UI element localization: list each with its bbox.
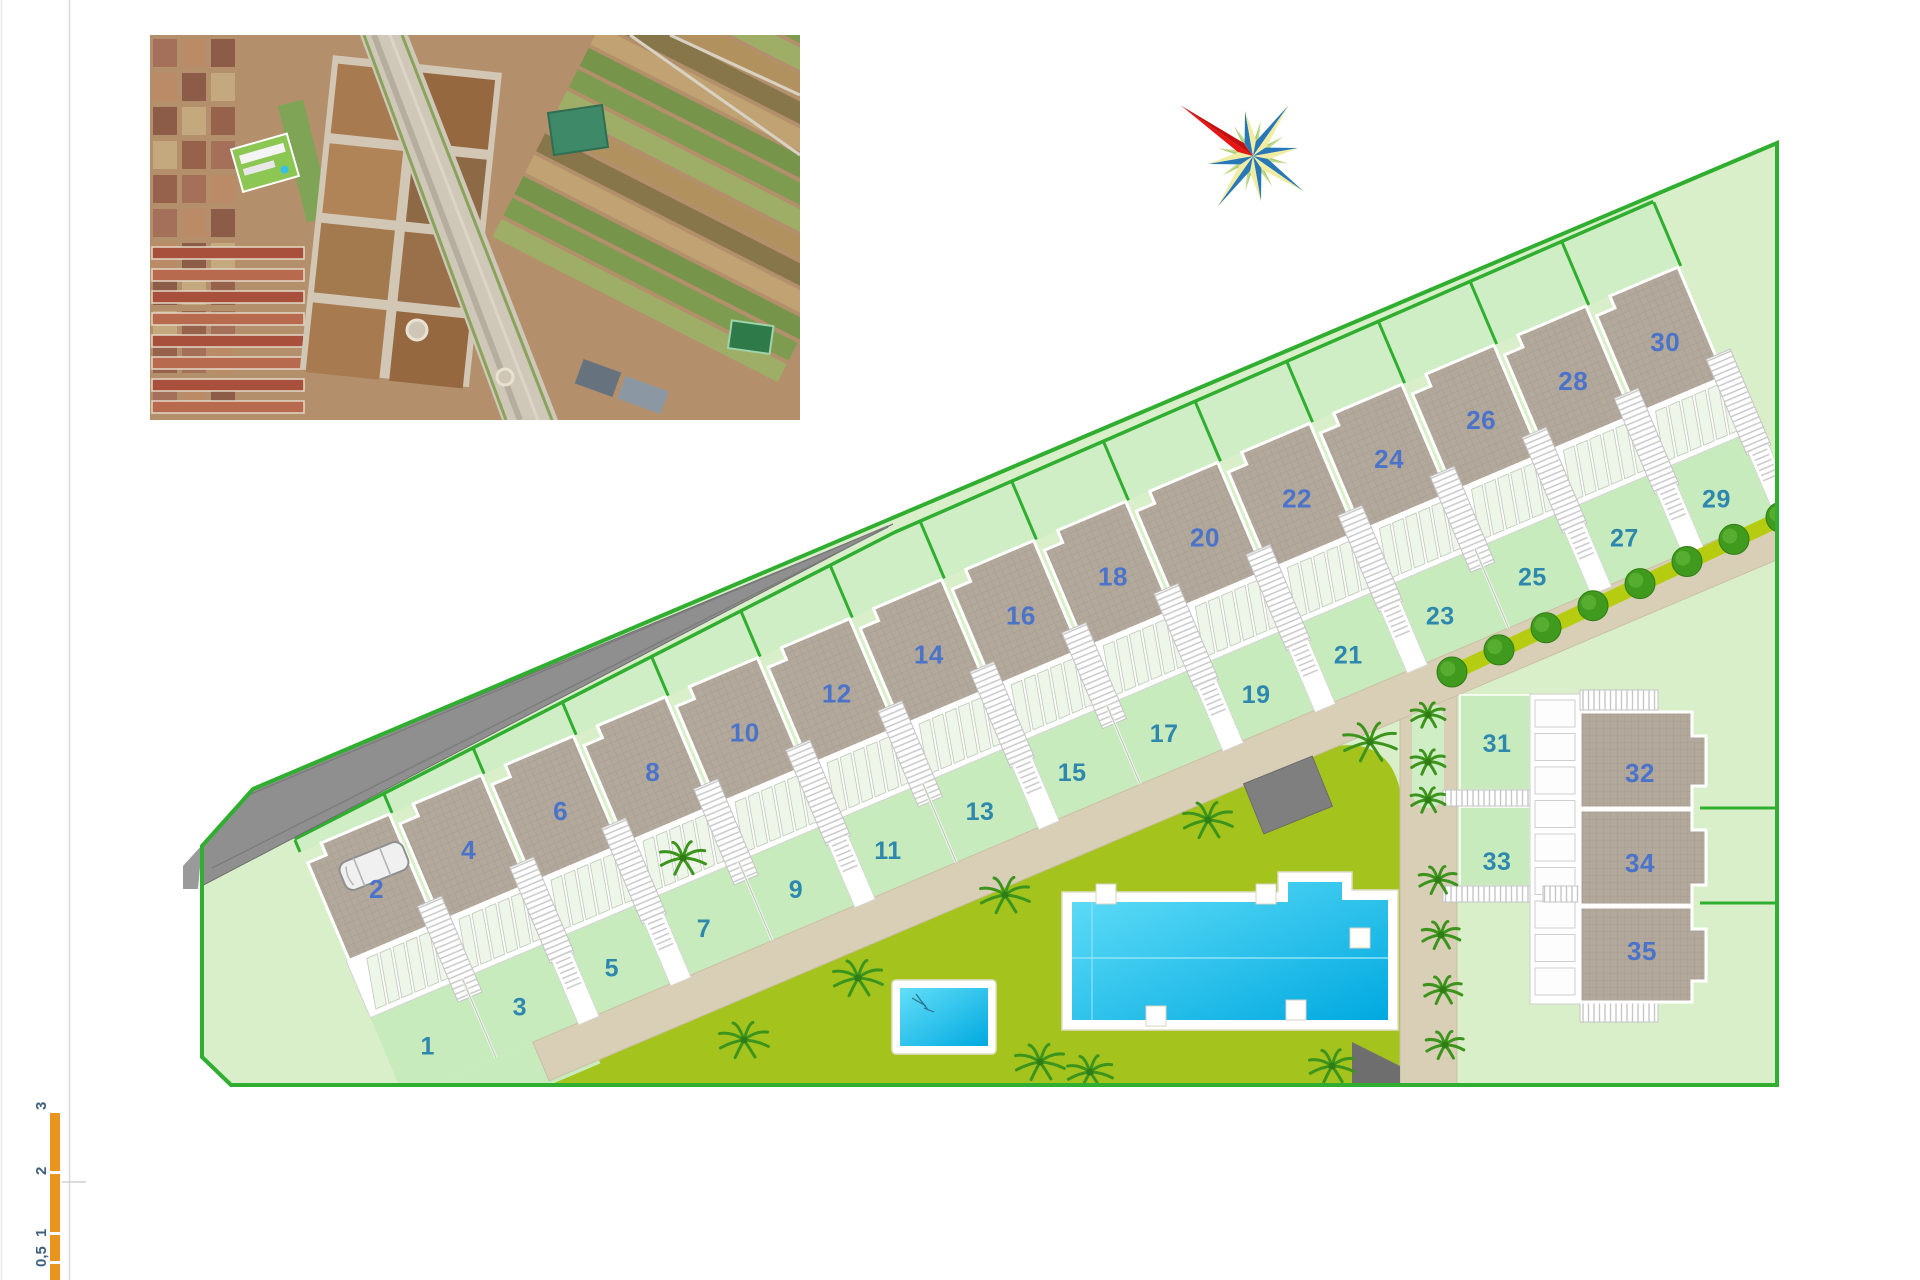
plot-label-16[interactable]: 16 — [1006, 601, 1036, 631]
plot-label-3[interactable]: 3 — [513, 993, 527, 1021]
scale-label: 1 — [33, 1229, 50, 1237]
plot-label-15[interactable]: 15 — [1058, 759, 1087, 787]
plot-label-12[interactable]: 12 — [822, 679, 852, 709]
plot-label-24[interactable]: 24 — [1374, 444, 1404, 474]
plot-label-2[interactable]: 2 — [369, 874, 384, 904]
plot-label-31[interactable]: 31 — [1483, 730, 1512, 758]
swimming-pool — [1062, 872, 1398, 1030]
plot-label-30[interactable]: 30 — [1650, 327, 1680, 357]
tree-icon — [1531, 613, 1561, 643]
plot-label-14[interactable]: 14 — [914, 640, 944, 670]
plot-label-33[interactable]: 33 — [1483, 848, 1512, 876]
plot-label-29[interactable]: 29 — [1702, 485, 1731, 513]
plot-label-28[interactable]: 28 — [1558, 366, 1588, 396]
plot-label-18[interactable]: 18 — [1098, 561, 1128, 591]
scale-bar: 0,5123 — [33, 1102, 60, 1280]
plot-label-10[interactable]: 10 — [730, 718, 760, 748]
plot-label-9[interactable]: 9 — [789, 876, 803, 904]
plot-label-23[interactable]: 23 — [1426, 603, 1455, 631]
plot-label-35[interactable]: 35 — [1627, 936, 1657, 966]
tree-icon — [1766, 502, 1796, 532]
tree-icon — [1672, 547, 1702, 577]
site-plan-document: 2143658710912111413161518172019222124232… — [0, 0, 1920, 1280]
compass-rose-icon — [1181, 87, 1306, 212]
plot-label-19[interactable]: 19 — [1242, 681, 1271, 709]
plot-label-5[interactable]: 5 — [605, 954, 619, 982]
scale-label: 3 — [33, 1102, 50, 1110]
scale-label: 0,5 — [33, 1246, 50, 1267]
plot-label-34[interactable]: 34 — [1625, 848, 1655, 878]
tree-icon — [1437, 657, 1467, 687]
site-plan-canvas: 2143658710912111413161518172019222124232… — [0, 0, 1920, 1280]
plot-label-11[interactable]: 11 — [874, 837, 901, 865]
plot-label-17[interactable]: 17 — [1150, 720, 1179, 748]
plot-label-6[interactable]: 6 — [553, 796, 568, 826]
plot-label-21[interactable]: 21 — [1334, 642, 1363, 670]
outside-boundary-elements — [183, 845, 202, 889]
plot-label-13[interactable]: 13 — [966, 798, 995, 826]
page-margin-lines — [2, 0, 87, 1280]
plot-label-4[interactable]: 4 — [461, 835, 476, 865]
tree-icon — [1625, 569, 1655, 599]
plot-label-8[interactable]: 8 — [645, 757, 660, 787]
plot-label-32[interactable]: 32 — [1625, 758, 1655, 788]
tree-icon — [1484, 635, 1514, 665]
aerial-inset-photo — [150, 0, 928, 420]
plot-label-22[interactable]: 22 — [1282, 483, 1312, 513]
plot-label-26[interactable]: 26 — [1466, 405, 1496, 435]
tree-icon — [1719, 524, 1749, 554]
scale-label: 2 — [33, 1167, 50, 1175]
kids-pool — [892, 980, 996, 1054]
tree-icon — [1578, 591, 1608, 621]
plot-label-20[interactable]: 20 — [1190, 522, 1220, 552]
plot-label-7[interactable]: 7 — [697, 915, 711, 943]
plot-label-25[interactable]: 25 — [1518, 564, 1547, 592]
plot-label-1[interactable]: 1 — [421, 1032, 435, 1060]
plot-label-27[interactable]: 27 — [1610, 525, 1639, 553]
